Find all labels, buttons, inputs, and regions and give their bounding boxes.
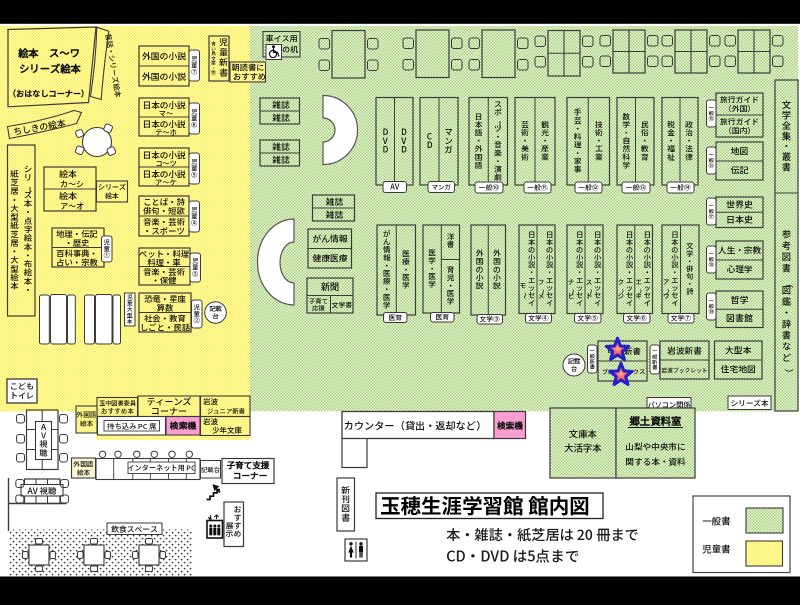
- svg-text:洋書: 洋書: [446, 231, 455, 250]
- svg-text:児童①: 児童①: [104, 237, 111, 259]
- svg-text:政治・法律: 政治・法律: [684, 119, 693, 162]
- svg-text:雑誌: 雑誌: [326, 208, 344, 221]
- svg-text:AV: AV: [390, 182, 400, 193]
- svg-text:児童⑤: 児童⑤: [191, 157, 198, 179]
- svg-text:マンガ: マンガ: [432, 182, 451, 191]
- svg-text:山梨や中央市に: 山梨や中央市に: [625, 441, 685, 453]
- svg-text:の机: の机: [282, 45, 299, 56]
- svg-text:児童④: 児童④: [191, 205, 198, 227]
- svg-text:民俗・教育: 民俗・教育: [640, 119, 649, 162]
- svg-text:テ〜ホ: テ〜ホ: [155, 128, 177, 138]
- svg-text:日本史: 日本史: [726, 213, 753, 226]
- svg-text:コーナー: コーナー: [233, 470, 268, 482]
- svg-text:世界史: 世界史: [726, 198, 753, 211]
- svg-text:持ち込み PC 席: 持ち込み PC 席: [107, 422, 156, 432]
- svg-text:ジュニア新書: ジュニア新書: [207, 407, 245, 416]
- svg-text:コ〜ツ: コ〜ツ: [155, 159, 177, 169]
- svg-text:占い・宗教: 占い・宗教: [56, 257, 98, 269]
- svg-text:雑誌: 雑誌: [272, 111, 290, 124]
- svg-text:哲学: 哲学: [730, 293, 748, 306]
- svg-text:一般⑩: 一般⑩: [479, 182, 500, 192]
- svg-text:・保健: ・保健: [151, 275, 177, 287]
- svg-text:岩波新書: 岩波新書: [667, 345, 702, 357]
- svg-text:絵本: 絵本: [80, 418, 94, 428]
- svg-text:新聞: 新聞: [321, 279, 339, 293]
- svg-text:郷土資料室: 郷土資料室: [629, 413, 683, 428]
- svg-text:一般⑪: 一般⑪: [527, 182, 548, 192]
- svg-text:CD: CD: [427, 130, 433, 151]
- svg-text:大型本: 大型本: [725, 344, 752, 357]
- svg-text:がん情報: がん情報: [312, 232, 347, 245]
- svg-text:（外国）: （外国）: [724, 104, 755, 115]
- svg-text:児童⑥: 児童⑥: [191, 107, 198, 129]
- svg-text:おすすめ: おすすめ: [233, 71, 266, 83]
- svg-text:文学⑥: 文学⑥: [627, 313, 648, 323]
- svg-text:大活字本: 大活字本: [564, 441, 602, 455]
- svg-text:文学③: 文学③: [480, 314, 501, 324]
- svg-text:外国の小説: 外国の小説: [492, 248, 501, 291]
- svg-text:新刊図書: 新刊図書: [341, 483, 350, 523]
- svg-text:文学・俳句・詩: 文学・俳句・詩: [686, 242, 694, 298]
- svg-text:一般⑯: 一般⑯: [708, 152, 715, 170]
- svg-text:カウンター（貸出・返却など）: カウンター（貸出・返却など）: [344, 418, 487, 433]
- svg-text:日本の小説・エッセイ: 日本の小説・エッセイ: [594, 230, 602, 308]
- svg-text:医育: 医育: [435, 312, 449, 322]
- svg-text:おすすめ: おすすめ: [234, 504, 242, 539]
- svg-text:一般書: 一般書: [702, 514, 731, 528]
- svg-text:岩波ブックレット: 岩波ブックレット: [660, 366, 708, 375]
- svg-text:一般⑰: 一般⑰: [708, 203, 715, 221]
- svg-text:雑誌: 雑誌: [272, 140, 290, 153]
- svg-text:児童書: 児童書: [702, 542, 731, 556]
- svg-text:青い鳥文庫・他: 青い鳥文庫・他: [210, 42, 216, 77]
- svg-text:児童⑦: 児童⑦: [191, 54, 198, 76]
- svg-text:少年文庫: 少年文庫: [212, 425, 242, 436]
- svg-text:本・雑誌・紙芝居は 20 冊まで: 本・雑誌・紙芝居は 20 冊まで: [446, 525, 639, 545]
- svg-text:玉穂生涯学習館 館内図: 玉穂生涯学習館 館内図: [380, 490, 590, 520]
- svg-text:CD・DVD は5点まで: CD・DVD は5点まで: [446, 546, 579, 567]
- svg-text:絵本 ス〜ワ: 絵本 ス〜ワ: [17, 45, 80, 60]
- svg-text:一般⑫: 一般⑫: [578, 182, 599, 192]
- svg-text:児童大型本: 児童大型本: [126, 292, 133, 325]
- svg-text:絵本: 絵本: [77, 467, 91, 477]
- svg-text:ア〜ケ: ア〜ケ: [155, 178, 177, 188]
- svg-text:雑誌: 雑誌: [326, 195, 344, 208]
- svg-text:日本語・外国語: 日本語・外国語: [474, 111, 483, 171]
- svg-text:おすすめ本: おすすめ本: [101, 406, 134, 416]
- svg-text:ア〜オ: ア〜オ: [60, 201, 84, 212]
- svg-text:日本の小説・エッセイ: 日本の小説・エッセイ: [626, 230, 634, 308]
- svg-text:伝記: 伝記: [729, 164, 748, 177]
- svg-text:技術・工業: 技術・工業: [595, 119, 603, 162]
- svg-text:一般⑲: 一般⑲: [708, 298, 715, 316]
- svg-text:コーナー: コーナー: [151, 405, 187, 418]
- svg-text:医育: 医育: [388, 312, 402, 322]
- svg-text:日本の小説・エッセイ: 日本の小説・エッセイ: [546, 230, 554, 308]
- svg-text:文学⑤: 文学⑤: [578, 313, 599, 323]
- svg-text:マ〜: マ〜: [159, 109, 173, 119]
- svg-text:育児・医学: 育児・医学: [447, 264, 455, 307]
- svg-text:検索機: 検索機: [169, 419, 197, 432]
- svg-text:外国の小説: 外国の小説: [475, 248, 484, 291]
- svg-text:（国内）: （国内）: [724, 126, 755, 137]
- svg-text:医療・医学: 医療・医学: [401, 248, 410, 291]
- svg-text:トイレ: トイレ: [10, 391, 34, 402]
- svg-text:税金・福祉: 税金・福祉: [666, 119, 675, 162]
- svg-text:DVD: DVD: [400, 126, 407, 155]
- svg-text:観光・産業: 観光・産業: [540, 119, 549, 162]
- svg-text:紙芝居・大型紙芝居・大型絵本: 紙芝居・大型紙芝居・大型絵本: [9, 168, 19, 292]
- svg-text:児童新書: 児童新書: [219, 35, 228, 79]
- svg-text:児童②: 児童②: [194, 302, 201, 324]
- svg-text:応援: 応援: [312, 304, 325, 313]
- svg-text:検索機: 検索機: [496, 420, 523, 432]
- svg-text:医学・医学: 医学・医学: [428, 247, 436, 290]
- svg-text:日本の小説・エッセイ: 日本の小説・エッセイ: [671, 230, 679, 308]
- svg-text:文学④: 文学④: [528, 313, 549, 323]
- svg-text:DVD: DVD: [382, 126, 389, 155]
- svg-text:雑誌: 雑誌: [272, 153, 290, 166]
- svg-text:外国の小説: 外国の小説: [142, 70, 186, 83]
- svg-text:芸術・美術: 芸術・美術: [520, 119, 529, 162]
- svg-text:カ〜シ: カ〜シ: [60, 179, 84, 190]
- svg-text:一般⑱: 一般⑱: [708, 251, 715, 269]
- svg-text:日本の小説・エッセイ: 日本の小説・エッセイ: [576, 230, 584, 308]
- svg-text:がん情報・医療・医学: がん情報・医療・医学: [382, 229, 391, 311]
- svg-text:図書館: 図書館: [726, 312, 753, 325]
- svg-text:文学書: 文学書: [332, 300, 353, 310]
- svg-text:児童③: 児童③: [192, 256, 199, 278]
- svg-text:一般⑬: 一般⑬: [626, 182, 647, 192]
- svg-text:一般⑮: 一般⑮: [708, 105, 715, 123]
- svg-text:・スポーツ: ・スポーツ: [143, 225, 185, 237]
- svg-text:記載台: 記載台: [201, 465, 220, 474]
- svg-text:（おはなしコーナー）: （おはなしコーナー）: [8, 89, 89, 100]
- svg-text:AV 視聴: AV 視聴: [28, 485, 57, 497]
- svg-text:一般新書: 一般新書: [651, 348, 658, 371]
- svg-text:外国の小説: 外国の小説: [142, 50, 186, 63]
- svg-text:手芸・料理・家事: 手芸・料理・家事: [573, 107, 583, 175]
- svg-text:数学・自然科学: 数学・自然科学: [621, 111, 630, 171]
- svg-text:関する本・資料: 関する本・資料: [625, 456, 686, 468]
- svg-text:しごと・民話: しごと・民話: [140, 322, 191, 334]
- svg-text:雑誌: 雑誌: [272, 98, 290, 111]
- svg-text:車イス用: 車イス用: [266, 34, 298, 45]
- svg-text:心理学: 心理学: [727, 264, 753, 276]
- svg-text:文庫本: 文庫本: [569, 427, 598, 441]
- svg-text:健康医療: 健康医療: [312, 252, 347, 265]
- svg-text:台: 台: [212, 312, 219, 321]
- svg-text:文学⑦: 文学⑦: [671, 313, 692, 323]
- svg-text:人生・宗教: 人生・宗教: [718, 245, 762, 257]
- svg-text:台: 台: [571, 364, 578, 373]
- svg-text:マンガ: マンガ: [444, 126, 452, 155]
- svg-text:シリーズ絵本: シリーズ絵本: [19, 61, 81, 76]
- svg-text:一般新書: 一般新書: [589, 347, 596, 370]
- svg-text:地図: 地図: [729, 145, 748, 158]
- svg-text:絵本: 絵本: [105, 192, 119, 202]
- svg-text:一般⑭: 一般⑭: [670, 182, 691, 192]
- svg-text:飲食スペース: 飲食スペース: [110, 524, 158, 535]
- svg-text:住宅地図: 住宅地図: [720, 363, 756, 376]
- svg-text:シリーズ本: シリーズ本: [731, 398, 769, 409]
- svg-text:インターネット用 PC: インターネット用 PC: [127, 464, 196, 474]
- svg-text:文学全集・叢書: 文学全集・叢書: [782, 97, 791, 173]
- svg-text:日本の小説・エッセイ: 日本の小説・エッセイ: [644, 230, 652, 308]
- svg-text:展示: 展示: [226, 520, 234, 539]
